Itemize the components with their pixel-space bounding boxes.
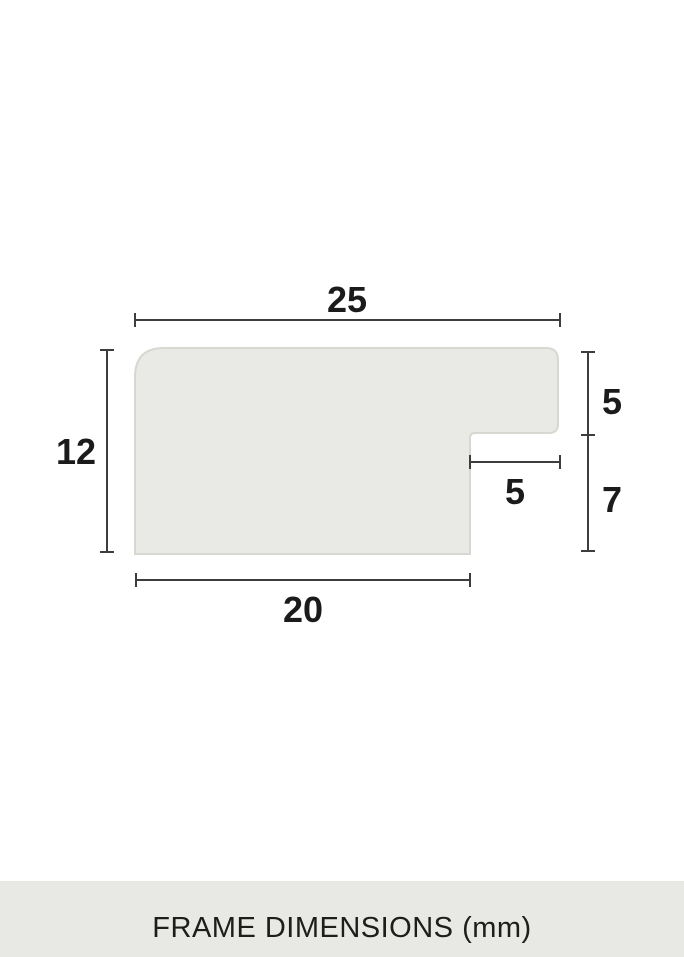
dim-left-height-label: 12 (56, 431, 96, 472)
dim-right-lower-label: 7 (602, 479, 622, 520)
page: 25 12 5 7 5 20 (0, 0, 684, 957)
footer-caption: FRAME DIMENSIONS (mm) (152, 912, 531, 945)
dim-right-upper-label: 5 (602, 381, 622, 422)
frame-dimension-diagram: 25 12 5 7 5 20 (0, 0, 684, 881)
dim-bottom-width-label: 20 (283, 589, 323, 630)
dim-notch-width-label: 5 (505, 471, 525, 512)
dim-top-width: 25 (135, 279, 560, 327)
dim-notch-width: 5 (470, 455, 560, 512)
dim-right-heights: 5 7 (581, 352, 622, 551)
dim-bottom-width: 20 (136, 573, 470, 630)
frame-profile-shape (135, 348, 558, 554)
footer-bar: FRAME DIMENSIONS (mm) (0, 881, 684, 957)
dim-left-height: 12 (56, 350, 114, 552)
dim-top-width-label: 25 (327, 279, 367, 320)
